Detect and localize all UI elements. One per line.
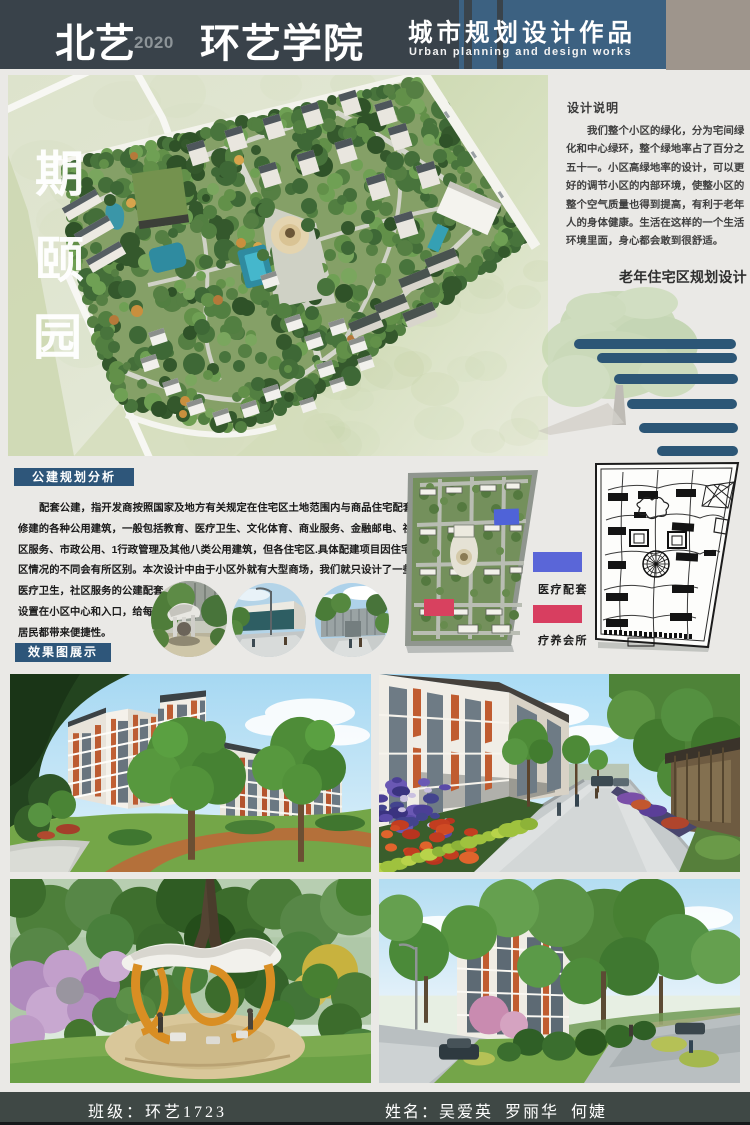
svg-text:园: 园 [33, 310, 82, 365]
svg-text:颐: 颐 [35, 233, 84, 288]
svg-text:期: 期 [35, 147, 84, 202]
